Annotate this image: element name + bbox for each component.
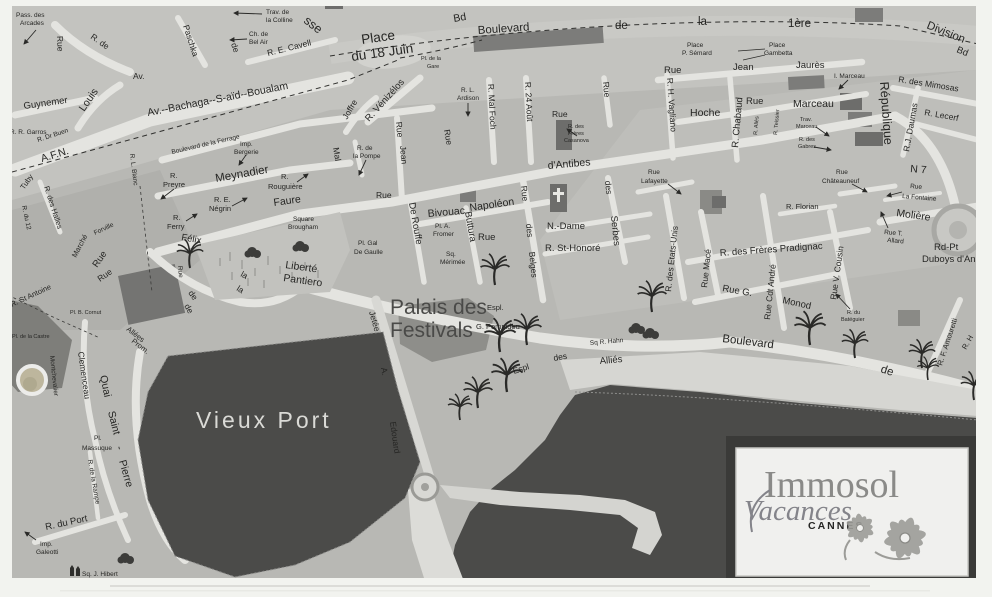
label-rue9: Rue bbox=[478, 232, 495, 243]
label-lafayette1: Rue bbox=[648, 169, 660, 176]
label-bergerie: Bergerie bbox=[234, 149, 259, 156]
label-pompidou1: Espl. bbox=[487, 303, 504, 312]
label-de-top: de bbox=[615, 20, 628, 32]
label-rue8: Rue bbox=[552, 109, 568, 119]
label-chateauneuf1: Rue bbox=[836, 169, 848, 176]
label-bd: Bd bbox=[452, 11, 467, 25]
margin-bottom bbox=[0, 578, 992, 597]
label-sq-merimee2: Mérimée bbox=[440, 259, 466, 266]
label-pl-gaulle2: De Gaulle bbox=[354, 249, 383, 256]
label-bateguier2: Batéguier bbox=[841, 317, 865, 323]
label-galeotti: Galeotti bbox=[36, 549, 58, 556]
label-palais2: Festivals bbox=[390, 319, 473, 342]
label-trav-marceau1: Trav. bbox=[800, 117, 812, 123]
label-rue: Rue bbox=[55, 36, 66, 52]
hole-punch bbox=[18, 366, 46, 394]
label-trav-marceau2: Marceau bbox=[796, 124, 817, 130]
map-area: Pass. des Arcades Rue R. de Av. Paschka … bbox=[0, 0, 992, 597]
label-marceau: Marceau bbox=[793, 98, 834, 110]
label-trav-colline2: la Colline bbox=[266, 17, 293, 24]
label-n7: N 7 bbox=[910, 163, 927, 176]
label-rue-jaures1: Rue bbox=[664, 65, 681, 76]
label-rue-jean-a: Rue bbox=[394, 121, 405, 138]
label-chateauneuf2: Châteauneuf bbox=[822, 178, 859, 185]
label-r3: R. bbox=[173, 213, 181, 222]
label-ferry: Ferry bbox=[167, 222, 185, 231]
label-rdpt1: Rd-Pt bbox=[934, 242, 959, 253]
label-serbes1: des bbox=[603, 180, 614, 195]
label-pompidou2: G. Pompidou bbox=[476, 322, 520, 331]
label-cornut: Pl. B. Cornut bbox=[70, 310, 102, 316]
label-place-gambetta1: Place bbox=[769, 42, 786, 49]
label-ardison2: Ardison bbox=[457, 95, 479, 102]
label-imp: Imp. bbox=[240, 141, 253, 148]
label-belges2: des bbox=[524, 223, 535, 238]
label-negrin2: Négrin bbox=[209, 204, 231, 213]
label-rue10: Rue bbox=[746, 96, 763, 107]
label-fontaine1: Rue bbox=[910, 183, 923, 191]
label-rue7: Rue bbox=[601, 81, 612, 98]
label-ardison1: R. L. bbox=[461, 87, 475, 94]
label-casanova1: R. des bbox=[568, 124, 584, 130]
label-pompe2: la Pompe bbox=[353, 153, 381, 160]
label-square: Square bbox=[293, 216, 314, 223]
label-imp2: Imp. bbox=[40, 541, 53, 548]
cannes-map: Pass. des Arcades Rue R. de Av. Paschka … bbox=[0, 0, 992, 597]
label-allies: Alliés bbox=[599, 354, 623, 367]
label-jetee-a: A. bbox=[379, 367, 390, 377]
label-pass-arcades: Pass. des bbox=[16, 12, 45, 19]
label-r2: R. bbox=[281, 172, 289, 181]
label-fromer1: Pl. A. bbox=[435, 223, 450, 230]
label-place-gambetta2: Gambetta bbox=[764, 50, 793, 57]
label-gare1: Pl. de la bbox=[421, 56, 442, 62]
label-fromer2: Fromer bbox=[433, 231, 455, 238]
label-casanova2: Frères bbox=[568, 131, 584, 137]
label-massuque: Massuque bbox=[82, 445, 112, 452]
scanned-map-page: Pass. des Arcades Rue R. de Av. Paschka … bbox=[0, 0, 992, 597]
label-r: R. bbox=[170, 171, 178, 180]
label-gabres1: R. des bbox=[799, 137, 815, 143]
label-gabres2: Gabres bbox=[798, 144, 816, 150]
margin-left bbox=[0, 0, 12, 597]
label-rouguiere: Rouguière bbox=[268, 182, 303, 191]
label-negrin1: R. E. bbox=[214, 195, 231, 204]
label-av: Av. bbox=[133, 71, 145, 81]
label-hoche: Hoche bbox=[690, 107, 721, 119]
label-brougham: Brougham bbox=[288, 224, 318, 231]
label-castre: Pl. de la Castre bbox=[12, 334, 50, 340]
label-lafayette2: Lafayette bbox=[641, 178, 668, 185]
label-place-semard2: P. Sémard bbox=[682, 50, 712, 57]
label-la-top: la bbox=[698, 16, 708, 28]
label-pompe1: R. de bbox=[357, 145, 373, 152]
label-florian: R. Florian bbox=[786, 202, 819, 211]
label-pass-arcades2: Arcades bbox=[20, 20, 45, 27]
label-casanova3: Casanova bbox=[564, 138, 590, 144]
label-palais1: Palais des bbox=[390, 296, 487, 319]
label-trav-colline: Trav. de bbox=[266, 9, 290, 16]
scan-shadow-line bbox=[110, 585, 870, 587]
label-ch-belair2: Bel Air bbox=[249, 39, 269, 46]
label-pl-gaulle1: Pl. Gal bbox=[358, 240, 378, 247]
label-sq-hibert: Sq. J. Hibert bbox=[82, 571, 118, 578]
label-sq-merimee1: Sq. bbox=[446, 251, 456, 258]
immosol-logo: Immosol Vacances CANNES bbox=[726, 436, 978, 583]
roundabout-jetee bbox=[412, 474, 438, 500]
label-ndame: N.-Dame bbox=[547, 221, 585, 232]
label-preyre: Preyre bbox=[163, 180, 185, 189]
label-rue2: Rue bbox=[176, 266, 184, 279]
label-ch-belair: Ch. de bbox=[249, 31, 269, 38]
label-st-honore: R. St-Honoré bbox=[545, 243, 600, 254]
label-i-marceau: I. Marceau bbox=[834, 73, 865, 80]
label-belges1: Rue bbox=[519, 185, 531, 202]
label-place-semard1: Place bbox=[687, 42, 704, 49]
label-bateguier1: R. du bbox=[847, 310, 860, 316]
church-icon bbox=[550, 184, 567, 212]
label-1ere: 1ère bbox=[788, 18, 811, 30]
label-rue-jean-b: Jean bbox=[398, 145, 410, 165]
margin-right bbox=[976, 0, 992, 597]
label-rue5: Rue bbox=[376, 190, 392, 200]
label-24-aout: R. 24 Août bbox=[523, 82, 535, 123]
label-vieux-port: Vieux Port bbox=[196, 407, 332, 433]
label-rue-jaures2: Jean bbox=[733, 62, 754, 73]
scan-shadow-line2 bbox=[60, 590, 930, 592]
label-gare2: Gare bbox=[427, 64, 439, 70]
label-pl: Pl. bbox=[94, 435, 102, 442]
margin-top bbox=[0, 0, 992, 6]
label-t-allard2: Allard bbox=[887, 237, 905, 245]
label-rue-jaures3: Jaurès bbox=[796, 60, 825, 71]
